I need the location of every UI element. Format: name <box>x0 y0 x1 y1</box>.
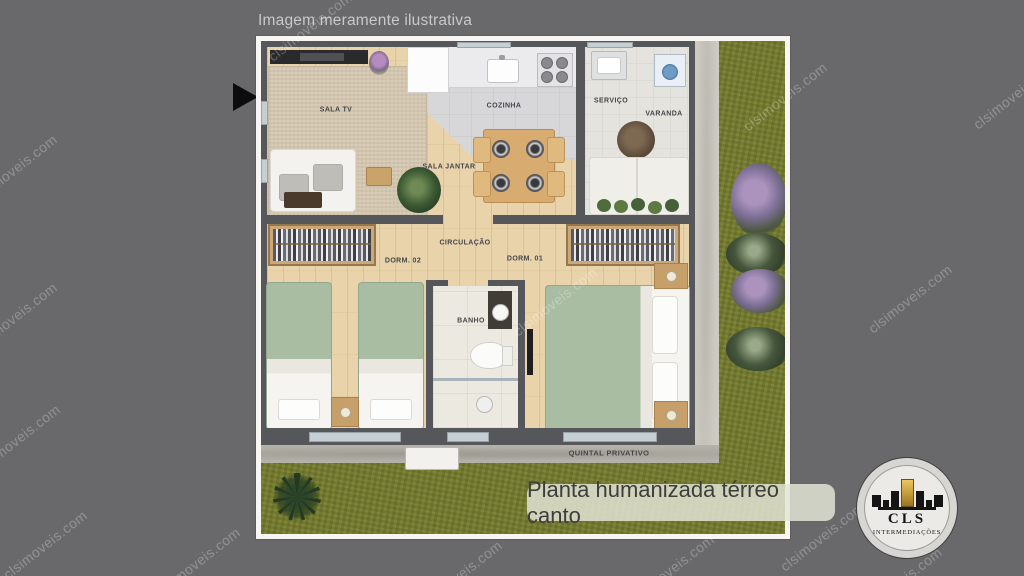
walkway-bottom <box>261 445 719 463</box>
fridge <box>407 47 449 93</box>
window <box>563 432 657 442</box>
shower-partition <box>433 378 518 381</box>
wall <box>518 280 525 428</box>
window <box>309 432 401 442</box>
room-label-dorm02: DORM. 02 <box>385 258 421 265</box>
bathroom-sink <box>488 291 512 329</box>
wardrobe-rail <box>273 243 371 245</box>
washing-machine <box>654 54 686 87</box>
window <box>261 159 268 183</box>
caption-text: Planta humanizada térreo canto <box>527 477 835 529</box>
place-setting <box>492 140 510 158</box>
logo-bar <box>916 491 924 507</box>
window <box>587 42 633 48</box>
nightstand <box>331 397 359 427</box>
dining-table <box>483 129 555 203</box>
pillow <box>370 399 412 420</box>
apartment-unit: SALA TV COZINHA SALA JANTAR SERVIÇO VARA… <box>261 41 695 445</box>
kitchen-sink <box>487 59 519 83</box>
room-label-banho: BANHO <box>457 318 485 325</box>
kitchen-counter <box>449 47 576 88</box>
logo-subtitle: INTERMEDIAÇÕES <box>873 529 941 536</box>
logo-bar <box>934 495 943 507</box>
wardrobe-rail <box>571 243 675 245</box>
logo-bar <box>883 500 889 507</box>
tv <box>300 53 344 61</box>
walkway-right <box>695 41 719 463</box>
watermark-text: clsimoveis.com <box>153 524 243 576</box>
flower-bush <box>731 163 785 237</box>
burner <box>541 71 553 83</box>
wall <box>493 215 695 224</box>
room-label-sala-jantar: SALA JANTAR <box>422 164 475 171</box>
burner <box>556 71 568 83</box>
watermark-text: clsimoveis.com <box>0 131 60 206</box>
wardrobe-dorm01 <box>566 224 680 266</box>
toilet <box>470 342 506 369</box>
balcony-table <box>617 121 655 159</box>
floorplan-image: QUINTAL PRIVATIVO <box>256 36 790 539</box>
shower-drain <box>476 396 493 413</box>
watermark-text: clsimoveis.com <box>865 261 955 336</box>
room-label-varanda: VARANDA <box>645 111 682 118</box>
logo-name: CLS <box>888 511 926 528</box>
wall <box>576 47 585 217</box>
lamp <box>666 271 677 282</box>
room-label-servico: SERVIÇO <box>594 98 628 105</box>
pillow <box>278 399 320 420</box>
room-label-cozinha: COZINHA <box>487 103 522 110</box>
skyline-logo-icon <box>872 480 943 507</box>
clothes <box>571 229 675 261</box>
disclaimer-text: Imagem meramente ilustrativa <box>258 12 472 30</box>
nightstand <box>654 263 688 289</box>
window <box>261 101 268 125</box>
burner <box>541 57 553 69</box>
sofa-cushion <box>313 164 343 191</box>
watermark-text: clsimoveis.com <box>0 507 90 576</box>
wardrobe-dorm02 <box>268 224 376 266</box>
place-setting <box>492 174 510 192</box>
logo-bar <box>926 500 932 507</box>
room-label-sala-tv: SALA TV <box>320 107 353 114</box>
lamp <box>340 407 351 418</box>
flower-bush <box>731 269 785 313</box>
logo-bar <box>872 495 881 507</box>
watermark-text: clsimoveis.com <box>0 279 60 354</box>
window <box>457 42 511 48</box>
bed-dorm02 <box>266 282 332 430</box>
play-arrow-icon[interactable] <box>233 83 258 111</box>
burner <box>556 57 568 69</box>
slide: Imagem meramente ilustrativa QUINTAL PRI… <box>0 0 1024 576</box>
coffee-table <box>284 192 322 208</box>
bed-dorm02 <box>358 282 424 430</box>
dining-chair <box>473 171 491 197</box>
palm-plant <box>273 473 321 521</box>
pillow <box>652 296 678 354</box>
watermark-text: clsimoveis.com <box>415 537 505 576</box>
laundry-tub <box>591 51 627 80</box>
lamp <box>666 410 677 421</box>
side-table <box>366 167 392 186</box>
room-label-dorm01: DORM. 01 <box>507 256 543 263</box>
wall <box>261 215 443 224</box>
wall <box>426 280 433 428</box>
balcony-plants <box>597 199 611 212</box>
dining-chair <box>547 137 565 163</box>
ac-unit <box>405 447 459 470</box>
logo-bar-gold <box>901 479 914 507</box>
place-setting <box>526 140 544 158</box>
logo-baseline <box>878 507 936 510</box>
logo-bar <box>891 491 899 507</box>
watermark-text: clsimoveis.com <box>0 401 63 476</box>
dining-chair <box>547 171 565 197</box>
floorplan: QUINTAL PRIVATIVO <box>261 41 785 534</box>
stove <box>537 53 573 87</box>
window <box>447 432 489 442</box>
tv-dorm01 <box>527 329 533 375</box>
caption-badge: Planta humanizada térreo canto <box>527 484 835 521</box>
place-setting <box>526 174 544 192</box>
flower-vase <box>369 51 389 75</box>
room-label-quintal: QUINTAL PRIVATIVO <box>569 449 650 458</box>
room-label-circulacao: CIRCULAÇÃO <box>439 240 490 247</box>
clothes <box>273 229 371 261</box>
nightstand <box>654 401 688 429</box>
indoor-plant <box>397 167 441 213</box>
watermark-text: clsimoveis.com <box>970 57 1024 132</box>
flower-bush <box>726 327 785 371</box>
dining-chair <box>473 137 491 163</box>
company-logo: CLS INTERMEDIAÇÕES <box>856 457 958 559</box>
